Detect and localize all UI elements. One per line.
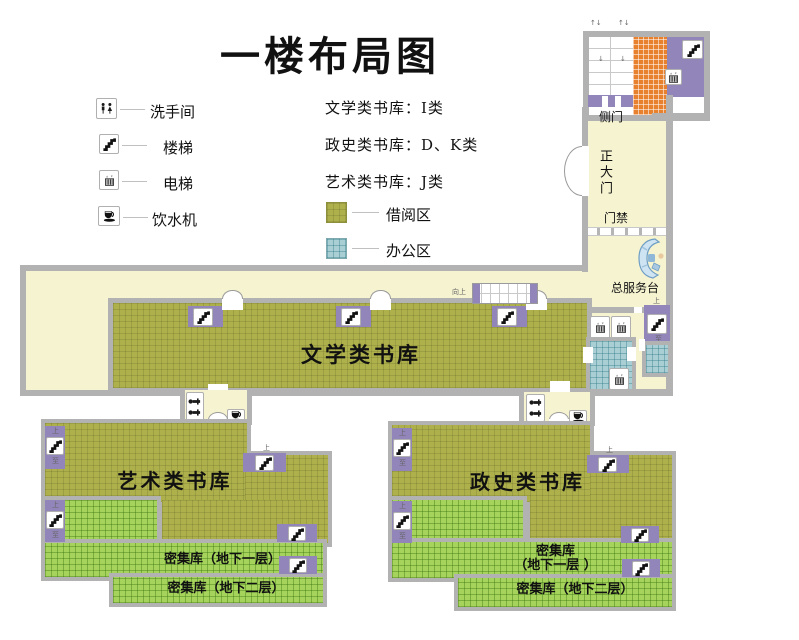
legend-dash xyxy=(122,181,147,182)
water-dispenser-icon xyxy=(98,206,120,226)
legend-category-literature: 文学类书库：I类 xyxy=(325,97,444,118)
restroom-row-icon xyxy=(188,397,202,406)
art-room-label: 艺术类书库 xyxy=(105,465,245,494)
staircase-area xyxy=(589,37,635,97)
side-door-wall xyxy=(588,95,633,107)
borrow-area-swatch xyxy=(326,202,347,223)
wall-segment xyxy=(587,389,672,396)
access-gate-barrier xyxy=(588,227,666,236)
elevator-icon xyxy=(590,316,610,339)
door-opening xyxy=(583,347,593,363)
restroom-row-icon xyxy=(529,398,543,407)
door-swing xyxy=(222,290,243,299)
stairs-icon xyxy=(193,308,213,326)
dense-b2-label: 密集库（地下二层） xyxy=(500,583,650,597)
legend-label-borrow-area: 借阅区 xyxy=(386,204,431,225)
elevator-icon xyxy=(609,368,629,390)
floor-plan-canvas: 一楼布局图 洗手间 楼梯 电梯 饮水机 文学类书库：I类 政史类书库：D、K类 … xyxy=(0,0,799,640)
restroom-icon xyxy=(186,392,204,422)
main-entrance-opening xyxy=(581,146,589,196)
door-opening xyxy=(639,339,645,351)
door-opening xyxy=(370,298,391,310)
stairs-icon xyxy=(341,308,361,326)
stairs-icon xyxy=(289,558,307,573)
door-opening xyxy=(627,347,636,361)
side-door-opening xyxy=(602,96,608,107)
main-entrance-label: 正大门 xyxy=(595,149,614,211)
legend-dash xyxy=(122,145,147,146)
door-swing xyxy=(370,290,391,299)
legend-dash xyxy=(123,217,148,218)
stairs-icon xyxy=(631,528,649,542)
side-door-opening xyxy=(615,96,621,107)
wall-segment xyxy=(652,113,710,121)
stairs-icon xyxy=(647,314,667,334)
politics-room-label: 政史类书库 xyxy=(455,466,600,495)
service-desk-icon xyxy=(634,237,666,281)
stairs-icon xyxy=(497,308,517,326)
service-desk-label: 总服务台 xyxy=(611,279,659,296)
elevator-icon xyxy=(611,316,631,339)
stairs-icon xyxy=(393,439,411,457)
dense-b2-label: 密集库（地下二层） xyxy=(152,582,300,596)
office-area-swatch xyxy=(326,238,347,259)
stairs-icon xyxy=(682,40,703,59)
restroom-icon xyxy=(526,394,545,422)
page-title: 一楼布局图 xyxy=(212,24,448,82)
main-entrance-door-swing xyxy=(564,146,582,196)
restroom-icon xyxy=(96,98,117,119)
stairs-icon xyxy=(255,455,274,471)
side-door-label: 侧门 xyxy=(599,108,623,125)
legend-dash xyxy=(352,248,379,249)
legend-label-office-area: 办公区 xyxy=(386,240,431,261)
legend-dash xyxy=(352,212,379,213)
stairs-icon xyxy=(46,511,64,529)
updown-mark: ↑↓ xyxy=(590,20,602,27)
legend-category-politics: 政史类书库：D、K类 xyxy=(325,134,478,155)
elevator-icon xyxy=(99,170,119,190)
stairs-icon xyxy=(393,512,411,530)
legend-label-water-dispenser: 饮水机 xyxy=(152,209,197,230)
legend-category-art: 艺术类书库：J类 xyxy=(325,171,444,192)
stairs-icon xyxy=(46,437,64,455)
stairs-icon xyxy=(288,526,306,541)
legend-label-elevator: 电梯 xyxy=(163,173,193,194)
escalator-zone xyxy=(633,37,667,115)
updown-mark: ↑↓ xyxy=(618,20,630,27)
stairs-icon xyxy=(99,134,119,154)
restroom-row-icon xyxy=(188,408,202,417)
office-area-room-small xyxy=(642,341,672,377)
stairs-icon xyxy=(598,457,617,472)
elevator-icon xyxy=(665,69,682,85)
dense-b1-label: 密集库 （地下一层 ） xyxy=(498,545,613,574)
legend-label-stairs: 楼梯 xyxy=(163,137,193,158)
escalator-up-label: 向上 xyxy=(452,289,466,296)
door-opening xyxy=(222,298,243,310)
escalator xyxy=(472,283,538,304)
legend-dash xyxy=(120,109,145,110)
dense-b1-label: 密集库（地下一层） xyxy=(150,553,295,567)
door-opening xyxy=(634,307,642,313)
restroom-row-icon xyxy=(529,409,543,418)
stairs-icon xyxy=(632,561,650,576)
access-gate-label: 门禁 xyxy=(604,209,628,226)
literature-room-label: 文学类书库 xyxy=(281,339,441,369)
legend-label-restroom: 洗手间 xyxy=(150,101,195,122)
